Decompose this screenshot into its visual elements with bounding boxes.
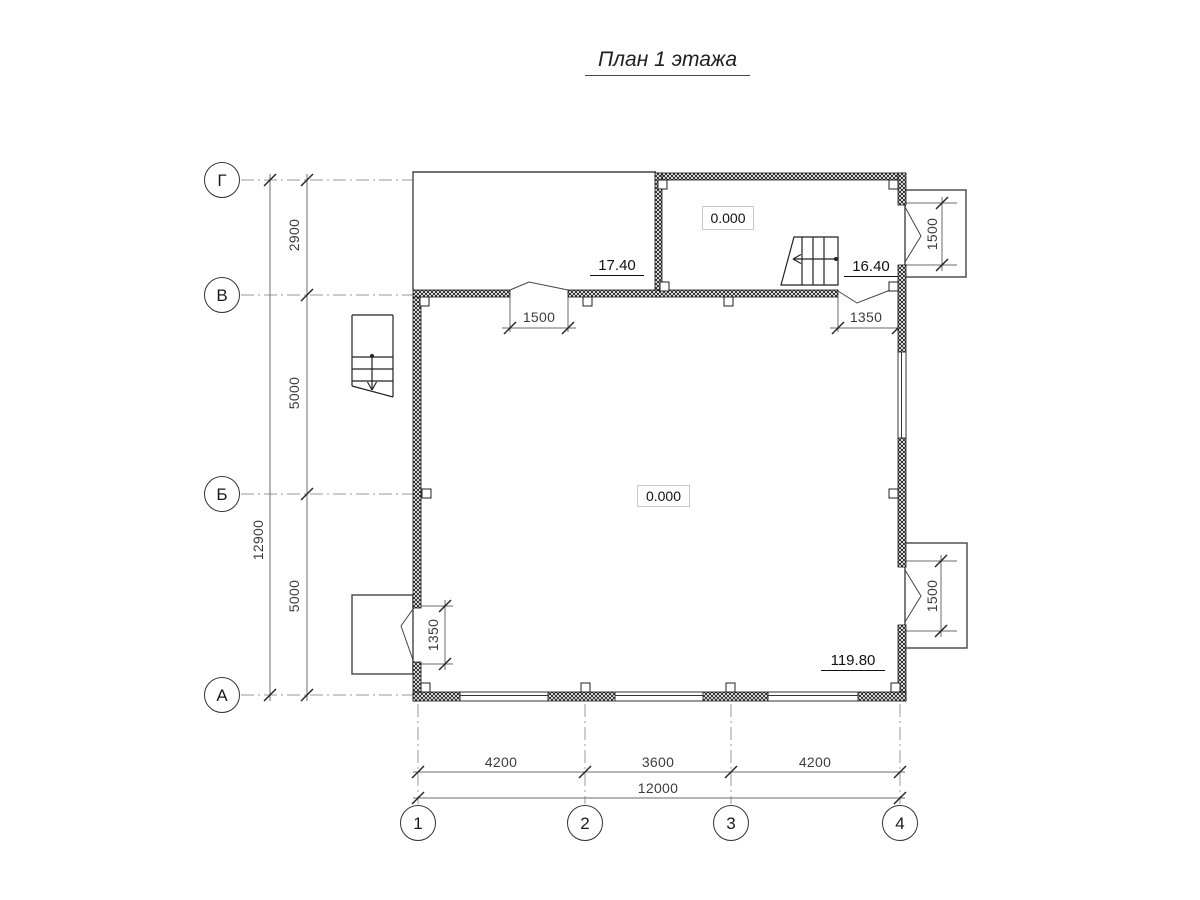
dim-door-1350: 1350 bbox=[836, 309, 896, 325]
windows bbox=[460, 352, 906, 701]
axis-circle-row-b: Б bbox=[204, 476, 240, 512]
axis-circle-col-3: 3 bbox=[713, 805, 749, 841]
grid-lines bbox=[241, 180, 900, 804]
level-mark-top-room: 0.000 bbox=[702, 206, 754, 230]
stairs-interior bbox=[781, 237, 838, 285]
dim-bottom-3600: 3600 bbox=[628, 754, 688, 770]
dim-porch-top-1500: 1500 bbox=[924, 204, 940, 264]
level-mark-main-room: 0.000 bbox=[637, 485, 690, 507]
dim-door-left-1350: 1350 bbox=[425, 605, 441, 665]
axis-circle-row-a: А bbox=[204, 677, 240, 713]
dim-bottom-total-12000: 12000 bbox=[628, 780, 688, 796]
axis-circle-row-g: Г bbox=[204, 162, 240, 198]
area-top-left-room: 17.40 bbox=[590, 257, 644, 276]
area-top-right-room: 16.40 bbox=[844, 258, 898, 277]
dim-door-1500: 1500 bbox=[509, 309, 569, 325]
dim-bottom-4200-left: 4200 bbox=[471, 754, 531, 770]
plan-linework bbox=[0, 0, 1200, 900]
area-main-room: 119.80 bbox=[821, 652, 885, 671]
dim-bottom-4200-right: 4200 bbox=[785, 754, 845, 770]
dim-left-5000-upper: 5000 bbox=[286, 363, 302, 423]
walls bbox=[413, 173, 906, 701]
axis-circle-col-2: 2 bbox=[567, 805, 603, 841]
axis-circle-col-4: 4 bbox=[882, 805, 918, 841]
axis-circle-row-v: В bbox=[204, 277, 240, 313]
drawing-title: План 1 этажа bbox=[585, 48, 750, 76]
floor-plan-sheet: План 1 этажа Г В Б А 1 2 3 4 2900 5000 5… bbox=[0, 0, 1200, 900]
dim-porch-bottom-1500: 1500 bbox=[924, 566, 940, 626]
dim-left-5000-lower: 5000 bbox=[286, 566, 302, 626]
dim-left-total-12900: 12900 bbox=[250, 510, 266, 570]
dim-left-2900: 2900 bbox=[286, 205, 302, 265]
stairs-exterior bbox=[352, 315, 393, 397]
axis-circle-col-1: 1 bbox=[400, 805, 436, 841]
